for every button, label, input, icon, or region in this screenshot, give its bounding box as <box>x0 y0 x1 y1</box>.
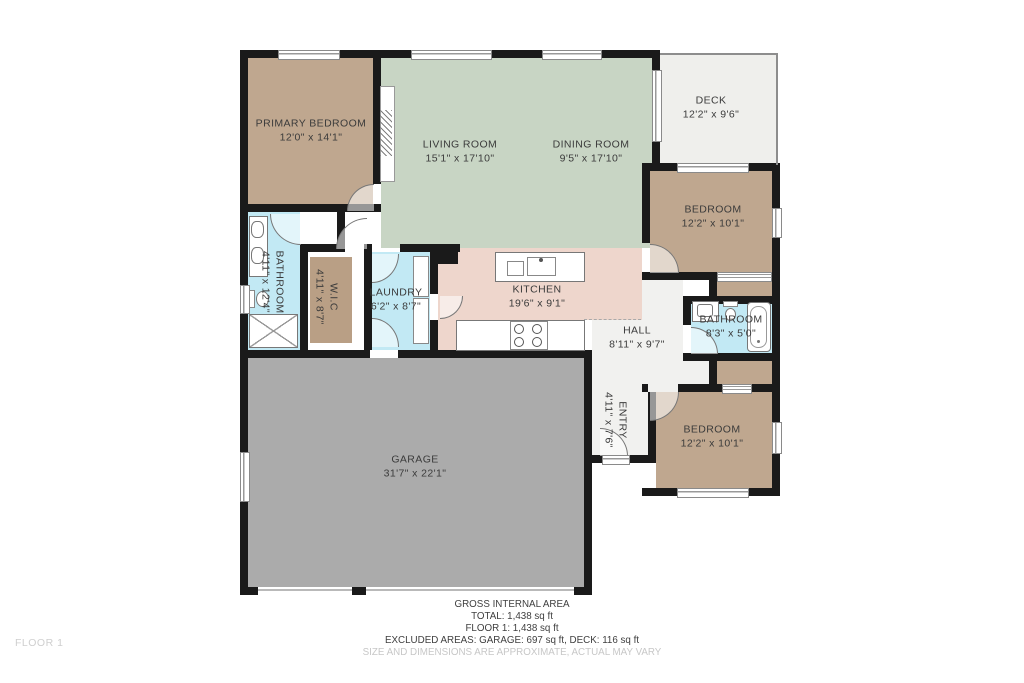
window <box>240 452 250 502</box>
wall-segment <box>750 384 772 392</box>
room-name: PRIMARY BEDROOM <box>256 117 367 131</box>
wall-segment <box>642 163 677 171</box>
room-dims: 4'11" x 7'6" <box>601 392 615 448</box>
closet-sliding-door <box>722 384 752 394</box>
wall-segment <box>683 353 780 361</box>
room-name: DECK <box>683 94 740 108</box>
room-label-primary-bedroom: PRIMARY BEDROOM 12'0" x 14'1" <box>256 117 367 144</box>
wall-segment <box>240 350 370 358</box>
room-dims: 15'1" x 17'10" <box>423 152 497 166</box>
room-name: DINING ROOM <box>553 138 630 152</box>
room-label-kitchen: KITCHEN 19'6" x 9'1" <box>509 283 566 310</box>
floor1-area: FLOOR 1: 1,438 sq ft <box>0 623 1024 635</box>
deck-edge <box>776 53 778 165</box>
room-label-entry: ENTRY 4'11" x 7'6" <box>601 392 628 448</box>
wall-segment <box>642 272 717 280</box>
garage-door <box>366 587 574 595</box>
floor-plan: PRIMARY BEDROOM 12'0" x 14'1" LIVING ROO… <box>0 0 1024 683</box>
room-name: BATHROOM <box>272 250 286 313</box>
wall-segment <box>584 455 602 463</box>
room-label-wic: W.I.C 4'11" x 8'7" <box>312 269 339 325</box>
room-label-bathroom-right: BATHROOM 8'3" x 5'0" <box>699 313 762 340</box>
window <box>677 163 749 173</box>
wall-segment <box>683 296 691 325</box>
wall-segment <box>652 50 660 70</box>
window <box>772 422 782 454</box>
window <box>772 208 782 238</box>
wall-segment <box>300 244 308 350</box>
room-name: W.I.C <box>326 269 340 325</box>
wall-segment <box>747 488 780 496</box>
gross-internal-area-heading: GROSS INTERNAL AREA <box>0 599 1024 611</box>
fireplace-hatch <box>380 110 392 156</box>
room-dims: 4'11" x 8'7" <box>312 269 326 325</box>
wall-segment <box>628 455 656 463</box>
faucet-icon <box>539 258 543 262</box>
wall-segment <box>584 350 592 595</box>
wall-segment <box>438 250 458 264</box>
disclaimer: SIZE AND DIMENSIONS ARE APPROXIMATE, ACT… <box>0 647 1024 659</box>
closet-bedroom-top-floor <box>717 280 772 296</box>
room-dims: 8'3" x 5'0" <box>699 327 762 341</box>
window <box>240 285 250 314</box>
room-dims: 31'7" x 22'1" <box>384 467 447 481</box>
room-name: BATHROOM <box>699 313 762 327</box>
room-dims: 12'2" x 9'6" <box>683 108 740 122</box>
wall-segment <box>398 350 592 358</box>
stove-burner-icon <box>532 324 542 334</box>
area-summary: GROSS INTERNAL AREA TOTAL: 1,438 sq ft F… <box>0 599 1024 659</box>
closet-bedroom-bottom-floor <box>717 361 772 384</box>
stove-burner-icon <box>532 337 542 347</box>
room-name: LAUNDRY <box>370 286 423 300</box>
sink-icon <box>251 221 264 238</box>
room-name: GARAGE <box>384 453 447 467</box>
wall-segment <box>240 50 248 595</box>
room-name: LIVING ROOM <box>423 138 497 152</box>
stove-burner-icon <box>514 324 524 334</box>
room-dims: 12'2" x 10'1" <box>681 437 744 451</box>
wall-segment <box>574 587 592 595</box>
sliding-door-deck <box>652 70 662 142</box>
window <box>542 50 602 60</box>
wall-segment <box>642 171 650 243</box>
room-dims: 4'11" x 12'4" <box>258 250 272 313</box>
room-label-dining-room: DINING ROOM 9'5" x 17'10" <box>553 138 630 165</box>
room-label-hall: HALL 8'11" x 9'7" <box>609 324 665 351</box>
garage-door <box>258 587 352 595</box>
front-door-leaf <box>602 455 630 465</box>
room-label-bedroom-top: BEDROOM 12'2" x 10'1" <box>682 203 745 230</box>
window <box>677 488 749 498</box>
room-name: ENTRY <box>615 392 629 448</box>
room-dims: 8'11" x 9'7" <box>609 338 665 352</box>
room-hall-floor-upper-arm <box>642 280 683 320</box>
room-label-living-room: LIVING ROOM 15'1" x 17'10" <box>423 138 497 165</box>
room-dims: 9'5" x 17'10" <box>553 152 630 166</box>
shower-icon <box>249 314 298 348</box>
room-label-bedroom-bottom: BEDROOM 12'2" x 10'1" <box>681 423 744 450</box>
room-dims: 19'6" x 9'1" <box>509 297 566 311</box>
floor-label: FLOOR 1 <box>15 637 63 649</box>
room-label-laundry: LAUNDRY 6'2" x 8'7" <box>370 286 423 313</box>
wall-segment <box>642 384 648 392</box>
stove-burner-icon <box>514 337 524 347</box>
room-dims: 12'0" x 14'1" <box>256 131 367 145</box>
room-dims: 6'2" x 8'7" <box>370 300 423 314</box>
room-label-bathroom-left: BATHROOM 4'11" x 12'4" <box>258 250 285 313</box>
room-dims: 12'2" x 10'1" <box>682 217 745 231</box>
total-area: TOTAL: 1,438 sq ft <box>0 611 1024 623</box>
room-name: BEDROOM <box>681 423 744 437</box>
excluded-areas: EXCLUDED AREAS: GARAGE: 697 sq ft, DECK:… <box>0 635 1024 647</box>
room-name: HALL <box>609 324 665 338</box>
wall-segment <box>642 488 677 496</box>
wall-segment <box>352 587 366 595</box>
wall-segment <box>430 244 438 294</box>
deck-edge <box>660 53 778 55</box>
room-label-garage: GARAGE 31'7" x 22'1" <box>384 453 447 480</box>
room-label-deck: DECK 12'2" x 9'6" <box>683 94 740 121</box>
island-sink-icon <box>507 261 524 276</box>
wall-segment <box>678 384 722 392</box>
closet-sliding-door <box>717 272 772 282</box>
wall-segment <box>300 244 340 252</box>
toilet-icon <box>723 301 738 307</box>
wall-segment <box>240 587 258 595</box>
open-boundary-dashed <box>584 319 641 320</box>
room-name: BEDROOM <box>682 203 745 217</box>
window <box>411 50 492 60</box>
window <box>278 50 340 60</box>
room-name: KITCHEN <box>509 283 566 297</box>
